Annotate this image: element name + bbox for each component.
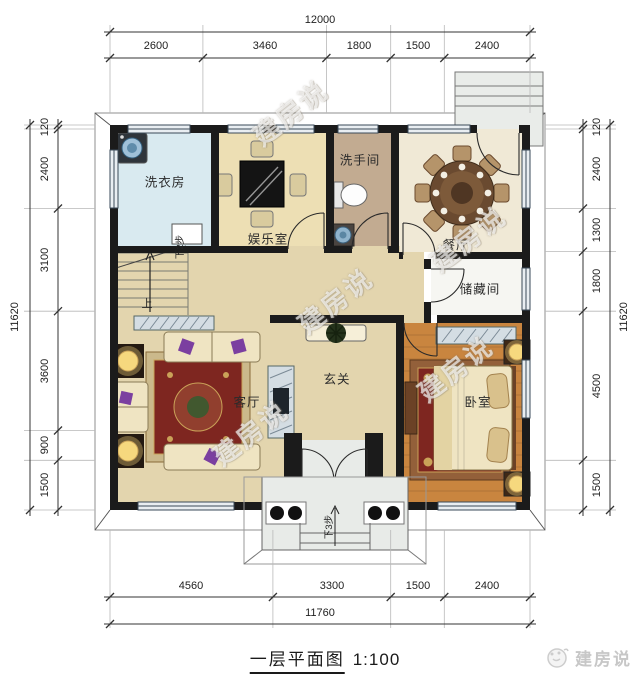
room-label-foyer: 玄关: [323, 369, 350, 388]
dim-left-seg-3: 3600: [39, 339, 51, 403]
porch-column: [368, 506, 382, 520]
dim-left-seg-1: 2400: [39, 137, 51, 201]
room-label-living: 客厅: [233, 392, 260, 411]
porch-column: [288, 506, 302, 520]
stairs-down2-label: 下2步: [172, 235, 186, 259]
floor-corridor: [399, 252, 424, 323]
porch-column: [386, 506, 400, 520]
porch: [244, 477, 426, 564]
dim-left-total: 11620: [9, 285, 21, 349]
room-label-washroom: 洗手间: [340, 150, 381, 169]
porch-column: [270, 506, 284, 520]
dim-right-seg-5: 1500: [591, 453, 603, 517]
room-label-entertainment: 娱乐室: [248, 229, 289, 248]
dining-table-set: [415, 146, 509, 240]
floor-plan-page: 12000 2600 3460 1800 1500 2400 11620 120…: [0, 0, 640, 681]
dim-right-total: 11620: [618, 285, 630, 349]
dim-top-seg-1: 3460: [230, 40, 300, 52]
title-text: 一层平面图: [250, 645, 345, 674]
floor-plan-canvas: [0, 0, 640, 681]
dim-bottom-seg-0: 4560: [156, 580, 226, 592]
dim-right-seg-1: 2400: [591, 137, 603, 201]
dim-left-seg-5: 1500: [39, 453, 51, 517]
room-label-dining: 餐厅: [442, 235, 469, 254]
dim-right-seg-4: 4500: [591, 354, 603, 418]
brand-face-icon: [544, 644, 570, 670]
dim-top-seg-4: 2400: [452, 40, 522, 52]
dim-bottom-total: 11760: [260, 607, 380, 619]
dim-top-seg-3: 1500: [383, 40, 453, 52]
room-label-laundry: 洗衣房: [145, 172, 186, 191]
dim-top-total: 12000: [260, 14, 380, 26]
toilet: [334, 182, 367, 208]
title-scale: 1:100: [353, 650, 401, 670]
dresser: [405, 382, 417, 434]
brand-logo: 建房说: [544, 644, 632, 670]
pillow: [486, 427, 509, 463]
dim-right-seg-3: 1800: [591, 249, 603, 313]
dim-bottom-seg-2: 1500: [383, 580, 453, 592]
room-label-storage: 储藏间: [460, 279, 501, 298]
console-table: [306, 323, 366, 343]
washbasin: [332, 224, 354, 246]
dim-top-seg-0: 2600: [121, 40, 191, 52]
washing-machine: [117, 133, 147, 163]
stairs-up-label: 上: [142, 295, 153, 311]
dim-bottom-seg-3: 2400: [452, 580, 522, 592]
dim-left-seg-2: 3100: [39, 228, 51, 292]
room-label-bedroom: 卧室: [464, 392, 491, 411]
dim-bottom-seg-1: 3300: [297, 580, 367, 592]
drawing-title: 一层平面图 1:100: [250, 645, 401, 674]
porch-down3-label: 下3步: [321, 515, 335, 539]
brand-text: 建房说: [575, 645, 632, 670]
